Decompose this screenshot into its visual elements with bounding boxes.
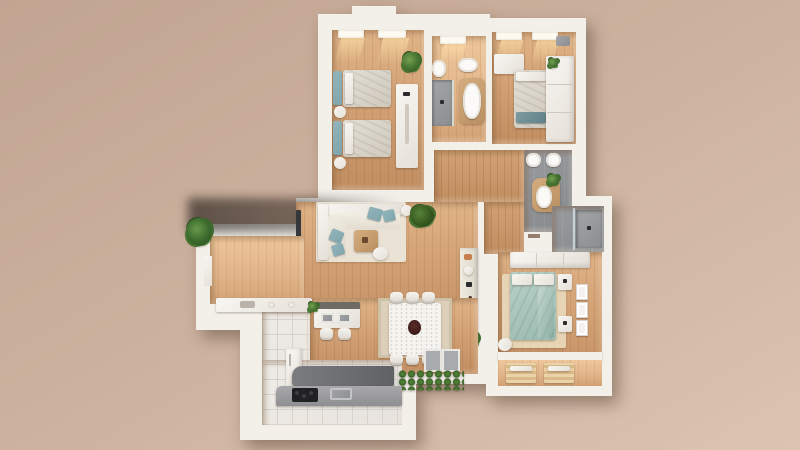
round-nightstand bbox=[334, 157, 346, 169]
console-decor bbox=[403, 92, 410, 96]
doormat bbox=[442, 349, 460, 372]
dining-chair bbox=[406, 292, 419, 303]
hallway bbox=[434, 150, 524, 202]
wall-shelf bbox=[556, 36, 570, 46]
black-cooktop bbox=[292, 388, 318, 402]
blanket-fold bbox=[538, 286, 554, 338]
window bbox=[496, 32, 522, 40]
small-round-table bbox=[373, 247, 388, 260]
bed-pillow bbox=[345, 73, 353, 104]
floor-plant bbox=[410, 205, 434, 227]
shower-drain bbox=[440, 100, 444, 104]
hedge-planter bbox=[398, 370, 464, 390]
window bbox=[338, 30, 364, 38]
bidet bbox=[458, 58, 478, 72]
wardrobe-door-lines bbox=[547, 84, 573, 85]
room-shower bbox=[552, 206, 604, 252]
doormat bbox=[424, 349, 442, 372]
sofa-arm-left bbox=[318, 204, 328, 260]
window-light-beam bbox=[335, 38, 365, 62]
wardrobe-door-line bbox=[536, 253, 537, 267]
window bbox=[532, 32, 558, 40]
window bbox=[378, 30, 406, 38]
wardrobe bbox=[510, 252, 590, 268]
toilet bbox=[432, 60, 446, 77]
wall-art-frame bbox=[576, 302, 588, 318]
bed-pillow bbox=[534, 274, 554, 285]
nightstand-lamp bbox=[563, 321, 567, 325]
potted-plant bbox=[402, 52, 420, 72]
cutting-board bbox=[240, 301, 255, 308]
wardrobe-door-line bbox=[563, 253, 564, 267]
table-centerpiece bbox=[408, 320, 421, 335]
wall-art-frame bbox=[576, 284, 588, 300]
kitchen-island bbox=[314, 302, 360, 328]
wardrobe bbox=[546, 56, 574, 142]
island-sink bbox=[321, 313, 334, 323]
shelf-item bbox=[464, 254, 472, 260]
bed-headboard bbox=[333, 71, 342, 105]
fridge-handle bbox=[289, 354, 291, 366]
burner bbox=[302, 394, 306, 398]
island-sink bbox=[338, 313, 351, 323]
bed-pillow bbox=[516, 72, 546, 81]
wall-art-frame bbox=[576, 320, 588, 336]
bed-pillow bbox=[512, 274, 532, 285]
burner bbox=[309, 391, 313, 395]
dining-chair bbox=[422, 292, 435, 303]
balcony-window-wall bbox=[498, 352, 602, 360]
vanity-sink bbox=[536, 186, 552, 208]
wall-block-top-bump bbox=[352, 6, 396, 20]
room-bathroom-main bbox=[432, 36, 486, 142]
bed-throw-blanket bbox=[516, 112, 546, 123]
round-nightstand bbox=[334, 106, 346, 118]
corner-potted-plant bbox=[186, 218, 212, 246]
shower-glass bbox=[573, 208, 575, 250]
room-bedroom-twin bbox=[332, 30, 424, 190]
island-top-shade bbox=[314, 302, 360, 309]
lounger-cushion bbox=[548, 366, 570, 371]
nightstand-lamp bbox=[563, 279, 567, 283]
bar-stool bbox=[338, 328, 351, 340]
toilet bbox=[546, 153, 561, 167]
vanity-plant bbox=[547, 174, 559, 186]
wardrobe-door-lines bbox=[547, 112, 573, 113]
coffee-table-decor bbox=[362, 237, 368, 243]
bar-stool bbox=[320, 328, 333, 340]
living-left-wing bbox=[210, 236, 304, 304]
bed-pillow bbox=[345, 123, 353, 154]
freestanding-bathtub bbox=[463, 83, 481, 119]
toilet bbox=[526, 153, 541, 167]
left-wall-door bbox=[204, 256, 212, 286]
burner bbox=[295, 391, 299, 395]
window bbox=[440, 36, 466, 44]
shelf-item-ball bbox=[464, 266, 473, 275]
room-bedroom-single bbox=[492, 32, 576, 144]
kitchen-area bbox=[262, 298, 402, 424]
shelf-item bbox=[466, 282, 472, 287]
console-runner bbox=[405, 104, 409, 144]
steel-sink bbox=[330, 388, 352, 400]
bar-counter-dark bbox=[292, 366, 394, 386]
shower-glass bbox=[452, 80, 454, 126]
plant-on-wardrobe bbox=[548, 58, 558, 68]
lounger-cushion bbox=[510, 366, 532, 371]
bed-headboard bbox=[333, 121, 342, 155]
floorplan-render bbox=[0, 0, 800, 450]
hallway-corridor bbox=[484, 202, 524, 254]
island-plant bbox=[308, 302, 318, 312]
shower-drain bbox=[587, 226, 591, 230]
room-bedroom-master bbox=[498, 252, 602, 386]
dining-chair bbox=[406, 354, 419, 365]
